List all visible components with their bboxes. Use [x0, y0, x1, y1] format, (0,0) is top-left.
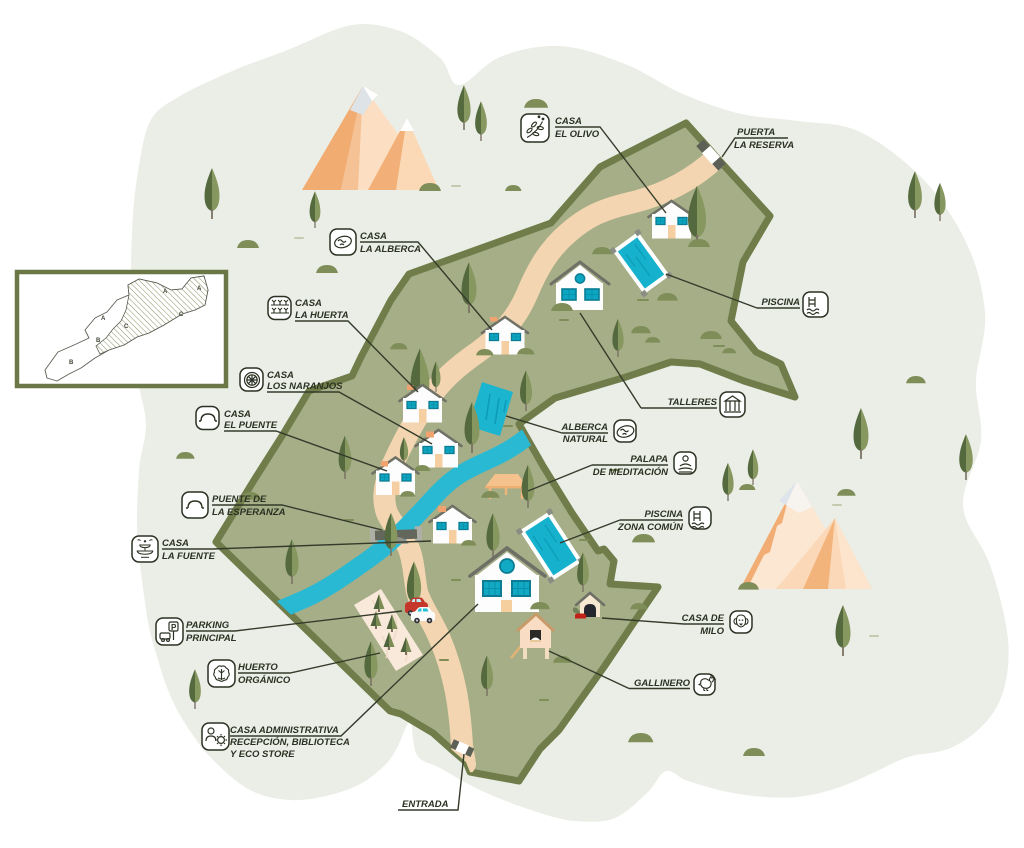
- svg-text:P: P: [171, 623, 177, 632]
- svg-text:PISCINA: PISCINA: [761, 297, 800, 308]
- svg-text:CASA DE: CASA DE: [682, 613, 725, 624]
- svg-text:LA FUENTE: LA FUENTE: [162, 551, 216, 562]
- svg-text:ZONA COMÚN: ZONA COMÚN: [617, 521, 684, 533]
- svg-text:ORGÁNICO: ORGÁNICO: [238, 675, 291, 686]
- svg-text:CASA: CASA: [360, 231, 387, 242]
- svg-text:C: C: [124, 324, 129, 330]
- svg-text:PRINCIPAL: PRINCIPAL: [186, 633, 237, 644]
- svg-text:ENTRADA: ENTRADA: [402, 799, 449, 810]
- svg-text:MILO: MILO: [700, 626, 724, 637]
- svg-text:CASA ADMINISTRATIVA: CASA ADMINISTRATIVA: [230, 725, 339, 736]
- svg-text:HUERTO: HUERTO: [238, 662, 278, 673]
- svg-text:PUERTA: PUERTA: [737, 127, 775, 138]
- svg-text:LA RESERVA: LA RESERVA: [734, 140, 794, 151]
- svg-text:EL OLIVO: EL OLIVO: [555, 129, 600, 140]
- svg-text:B: B: [69, 360, 74, 366]
- svg-text:Y ECO STORE: Y ECO STORE: [230, 749, 295, 760]
- svg-text:PUENTE DE: PUENTE DE: [212, 494, 267, 505]
- svg-text:PALAPA: PALAPA: [630, 454, 668, 465]
- svg-text:CASA: CASA: [162, 538, 189, 549]
- svg-text:CASA: CASA: [224, 409, 251, 420]
- svg-text:A: A: [101, 316, 106, 322]
- svg-text:A: A: [163, 289, 168, 295]
- svg-text:DE MEDITACIÓN: DE MEDITACIÓN: [593, 466, 669, 478]
- svg-text:LA ALBERCA: LA ALBERCA: [360, 244, 421, 255]
- svg-text:RECEPCIÓN, BIBLIOTECA: RECEPCIÓN, BIBLIOTECA: [230, 736, 350, 748]
- svg-text:CASA: CASA: [267, 370, 294, 381]
- svg-text:CASA: CASA: [295, 298, 322, 309]
- svg-text:LA ESPERANZA: LA ESPERANZA: [212, 507, 286, 518]
- svg-text:LA HUERTA: LA HUERTA: [295, 310, 349, 321]
- svg-text:A: A: [197, 286, 202, 292]
- svg-text:B: B: [96, 338, 101, 344]
- svg-text:PISCINA: PISCINA: [644, 509, 683, 520]
- svg-text:TALLERES: TALLERES: [668, 397, 718, 408]
- svg-text:C: C: [179, 312, 184, 318]
- svg-text:LOS NARANJOS: LOS NARANJOS: [267, 381, 343, 392]
- svg-text:CASA: CASA: [555, 116, 582, 127]
- svg-text:NATURAL: NATURAL: [563, 434, 608, 445]
- svg-text:ALBERCA: ALBERCA: [561, 422, 609, 433]
- svg-text:PARKING: PARKING: [186, 620, 230, 631]
- svg-text:EL PUENTE: EL PUENTE: [224, 420, 278, 431]
- svg-text:GALLINERO: GALLINERO: [634, 678, 691, 689]
